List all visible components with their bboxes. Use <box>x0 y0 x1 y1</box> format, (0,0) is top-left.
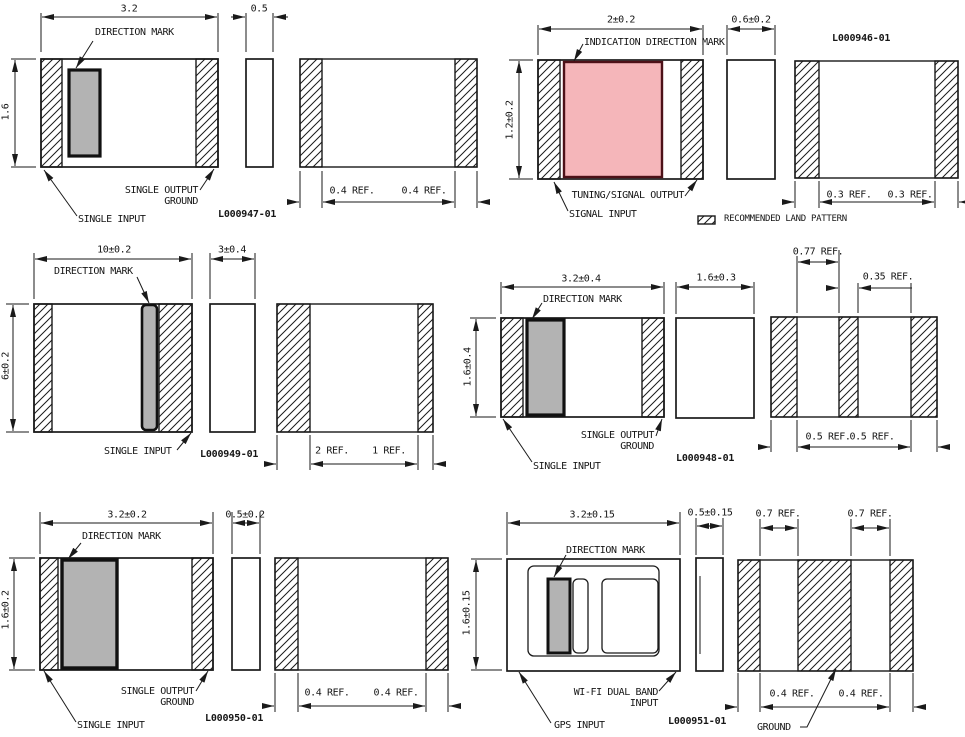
panel-L000949-01-linework <box>6 253 446 470</box>
direction-mark <box>142 305 157 430</box>
dim-land-pad-left: 0.4 REF. <box>330 186 375 197</box>
dim-body-height: 1.6±0.2 <box>1 590 12 629</box>
side-view <box>246 59 273 167</box>
direction-mark-label: DIRECTION MARK <box>82 531 161 542</box>
output-label: SINGLE OUTPUT GROUND <box>104 686 194 708</box>
terminal-pad <box>159 304 192 432</box>
land-pad-ground <box>798 560 851 671</box>
dim-thickness: 0.5±0.2 <box>225 510 264 521</box>
terminal-pad <box>40 558 58 670</box>
wifi-input-label-line1: WI-FI DUAL BAND <box>568 687 658 698</box>
dim-body-width: 3.2 <box>121 4 138 15</box>
output-label-line2: GROUND <box>104 697 194 708</box>
terminal-pad <box>41 59 62 167</box>
land-pad <box>795 61 819 178</box>
input-label: SINGLE INPUT <box>78 214 145 225</box>
leader-direction-mark <box>532 303 542 319</box>
extension-lines <box>738 673 913 712</box>
land-pad <box>275 558 298 670</box>
part-number: L000947-01 <box>218 209 276 220</box>
terminal-pad <box>192 558 213 670</box>
part-number: L000946-01 <box>832 33 890 44</box>
direction-mark <box>69 70 100 156</box>
input-label: SINGLE INPUT <box>104 446 171 457</box>
land-pad <box>738 560 760 671</box>
direction-mark-label: DIRECTION MARK <box>566 545 645 556</box>
ground-label: GROUND <box>757 722 791 733</box>
output-label-line2: GROUND <box>108 196 198 207</box>
dim-land-pad-right: 0.4 REF. <box>402 186 447 197</box>
dim-land-pad-left: 0.3 REF. <box>827 190 872 201</box>
dim-thickness: 0.5 <box>251 4 268 15</box>
leader-output <box>200 169 214 190</box>
dim-body-height: 1.6±0.15 <box>462 591 473 636</box>
dim-land-gap-left: 0.7 REF. <box>756 509 801 520</box>
land-pad-center <box>839 317 858 417</box>
dim-land-pad-right: 0.3 REF. <box>888 190 933 201</box>
land-pad <box>418 304 433 432</box>
dim-body-width: 3.2±0.2 <box>107 510 146 521</box>
leader-output <box>196 671 208 691</box>
side-view <box>727 60 775 179</box>
input-label: SINGLE INPUT <box>77 720 144 731</box>
dim-land-pad-left: 0.5 REF. <box>806 432 851 443</box>
extension-lines <box>470 318 496 417</box>
leader-indication-mark <box>574 44 583 61</box>
wifi-input-label: WI-FI DUAL BAND INPUT <box>568 687 658 709</box>
side-view <box>232 558 260 670</box>
part-number: L000949-01 <box>200 449 258 460</box>
terminal-pad <box>681 60 703 179</box>
direction-mark-label: DIRECTION MARK <box>543 294 622 305</box>
direction-mark-label: DIRECTION MARK <box>95 27 174 38</box>
terminal-pad <box>34 304 52 432</box>
dim-land-pad-right: 1 REF. <box>372 446 406 457</box>
part-number: L000950-01 <box>205 713 263 724</box>
dim-body-height: 1.2±0.2 <box>505 100 516 139</box>
dim-thickness: 1.6±0.3 <box>696 273 735 284</box>
output-label: SINGLE OUTPUT GROUND <box>564 430 654 452</box>
legend-hatch-swatch <box>698 216 715 224</box>
gps-input-label: GPS INPUT <box>554 720 605 731</box>
leader-wifi-input <box>659 672 676 691</box>
leader-input <box>177 433 191 450</box>
dim-land-pad-left: 0.4 REF. <box>305 688 350 699</box>
output-label-line1: SINGLE OUTPUT <box>564 430 654 441</box>
leader-direction-mark <box>76 41 93 68</box>
terminal-pad <box>196 59 218 167</box>
land-pad <box>911 317 937 417</box>
input-label: SIGNAL INPUT <box>569 209 636 220</box>
dim-land-pad-left: 2 REF. <box>315 446 349 457</box>
land-pattern <box>275 558 448 670</box>
leader-input <box>44 671 76 722</box>
direction-mark-label: DIRECTION MARK <box>54 266 133 277</box>
terminal-pad <box>642 318 664 417</box>
dim-land-pad-right: 0.4 REF. <box>839 689 884 700</box>
dim-land-center-pad: 0.35 REF. <box>863 272 914 283</box>
indication-direction-mark-label: INDICATION DIRECTION MARK <box>584 37 725 48</box>
leader-direction-mark <box>68 543 81 559</box>
part-number: L000948-01 <box>676 453 734 464</box>
extension-lines <box>760 519 890 556</box>
land-pad <box>771 317 797 417</box>
dim-body-height: 6±0.2 <box>1 352 12 380</box>
dim-body-height: 1.6±0.4 <box>463 347 474 386</box>
part-number: L000951-01 <box>668 716 726 727</box>
technical-drawing-sheet: 3.2 0.5 1.6 DIRECTION MARK SINGLE OUTPUT… <box>0 0 965 737</box>
dim-land-pad-left: 0.4 REF. <box>770 689 815 700</box>
terminal-pad <box>538 60 560 179</box>
dim-body-width: 3.2±0.4 <box>561 274 600 285</box>
wifi-input-label-line2: INPUT <box>568 698 658 709</box>
land-pad <box>426 558 448 670</box>
terminal-pad <box>501 318 523 417</box>
drawing-linework <box>0 0 965 737</box>
output-label: SINGLE OUTPUT GROUND <box>108 185 198 207</box>
extension-lines <box>9 558 35 670</box>
input-label: SINGLE INPUT <box>533 461 600 472</box>
side-view <box>210 304 255 432</box>
dim-body-width: 3.2±0.15 <box>570 510 615 521</box>
dim-body-width: 2±0.2 <box>607 15 635 26</box>
inner-pattern-slot <box>573 579 588 653</box>
leader-input <box>44 170 77 216</box>
legend-label: RECOMMENDED LAND PATTERN <box>724 214 847 225</box>
side-view <box>676 318 754 418</box>
direction-mark <box>548 579 570 653</box>
land-pad <box>890 560 913 671</box>
land-pad <box>300 59 322 167</box>
leader-output <box>685 180 697 196</box>
extension-lines <box>795 181 958 208</box>
component-body <box>507 559 680 671</box>
dim-thickness: 0.5±0.15 <box>688 508 733 519</box>
dim-thickness: 0.6±0.2 <box>731 15 770 26</box>
leader-output <box>656 419 662 436</box>
dim-body-height: 1.6 <box>1 104 12 121</box>
dim-body-width: 10±0.2 <box>97 245 131 256</box>
inner-pattern-cavity <box>602 579 658 653</box>
direction-mark <box>527 320 564 415</box>
land-pad <box>935 61 958 178</box>
output-label-line1: SINGLE OUTPUT <box>108 185 198 196</box>
dim-land-pad-right: 0.4 REF. <box>374 688 419 699</box>
output-label-line1: SINGLE OUTPUT <box>104 686 194 697</box>
dim-land-pad-right: 0.5 REF. <box>850 432 895 443</box>
dim-land-gap-right: 0.7 REF. <box>848 509 893 520</box>
direction-mark <box>62 560 117 668</box>
indication-direction-mark <box>564 62 662 177</box>
land-pad <box>277 304 310 432</box>
land-pattern <box>300 59 477 167</box>
leader-gps-input <box>519 672 551 723</box>
leader-direction-mark <box>137 277 149 303</box>
output-label-line2: GROUND <box>564 441 654 452</box>
output-label: TUNING/SIGNAL OUTPUT <box>564 190 684 201</box>
leader-input <box>503 419 532 462</box>
dim-thickness: 3±0.4 <box>218 245 246 256</box>
extension-lines <box>277 435 433 470</box>
land-pad <box>455 59 477 167</box>
dim-land-gap: 0.77 REF. <box>793 247 844 258</box>
